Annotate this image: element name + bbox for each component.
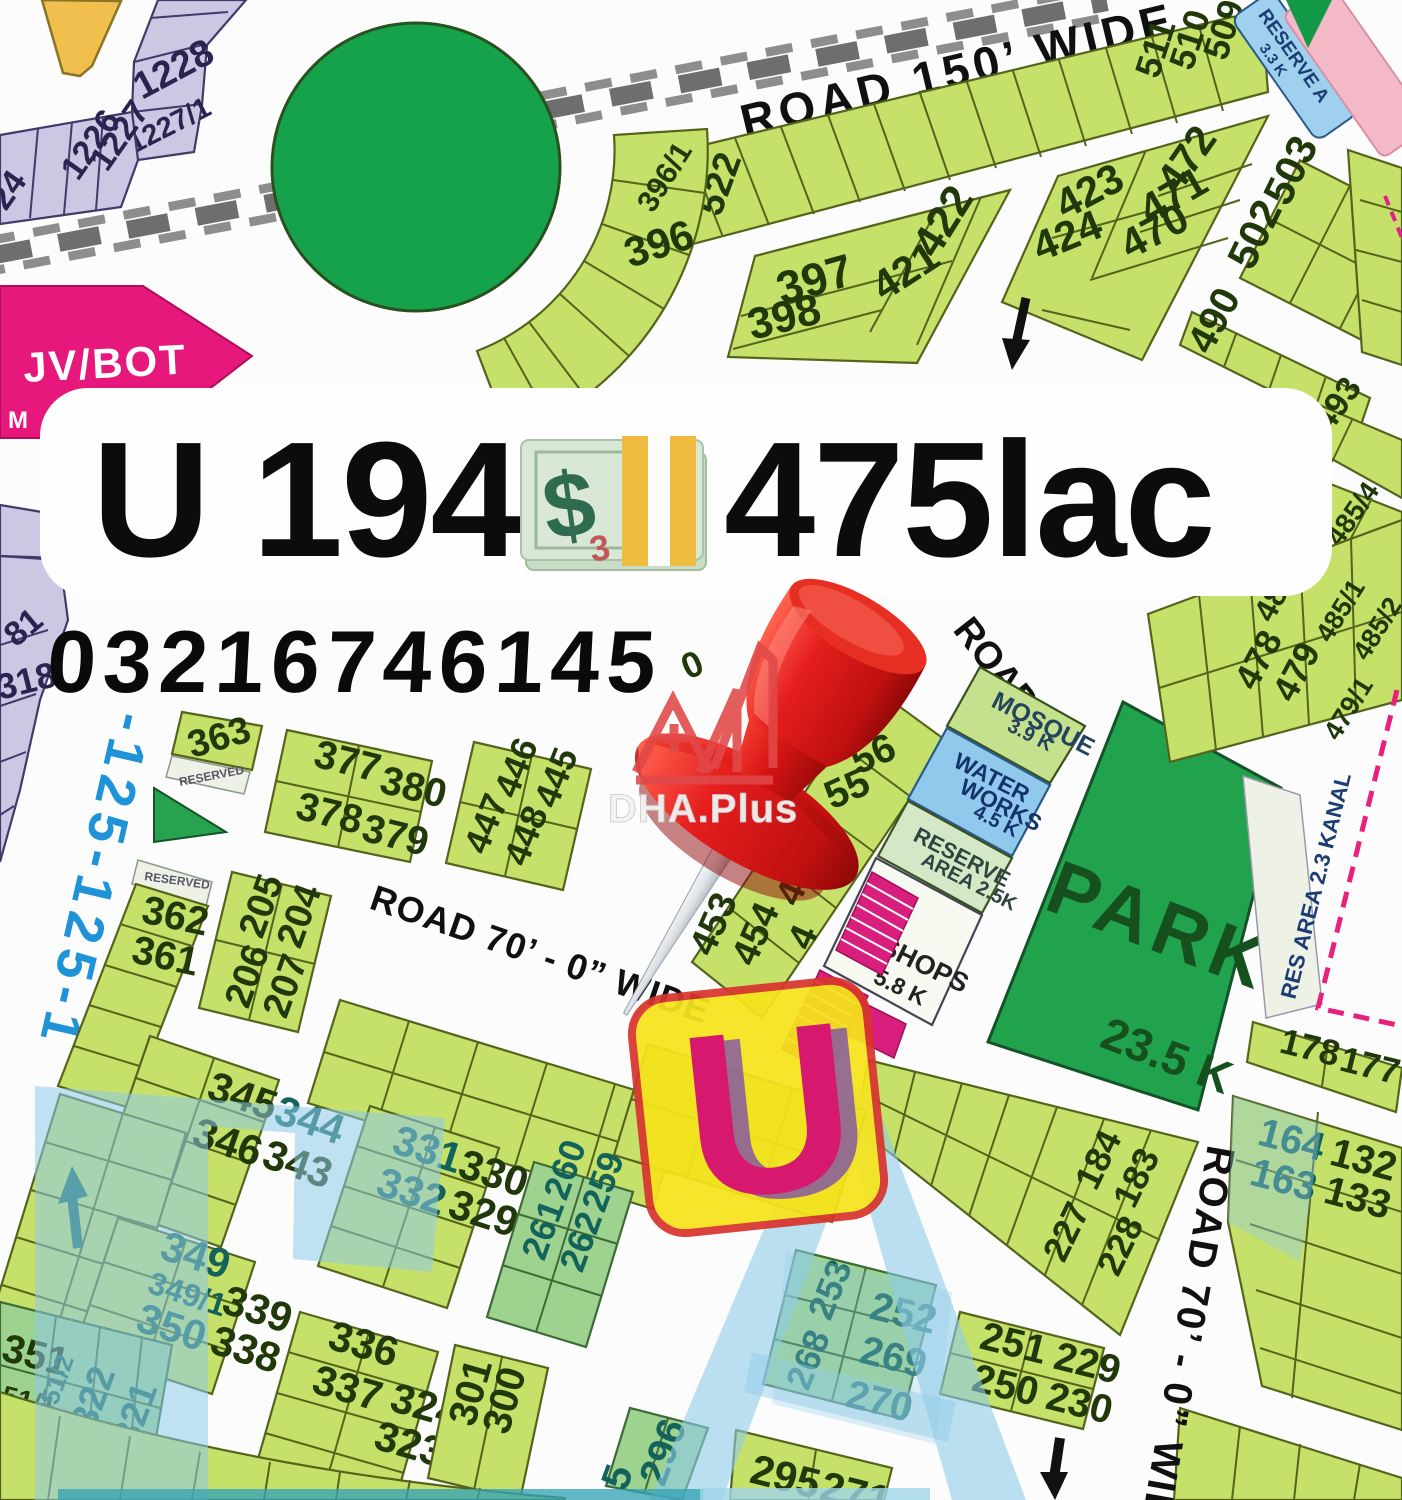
- svg-text:U: U: [670, 971, 866, 1250]
- svg-text:U 194: U 194: [92, 408, 521, 591]
- svg-text:03216746145: 03216746145: [45, 612, 665, 711]
- svg-text:DHA.Plus: DHA.Plus: [608, 787, 798, 831]
- svg-text:M: M: [8, 407, 28, 434]
- svg-text:JV/BOT: JV/BOT: [22, 335, 188, 391]
- svg-text:475lac: 475lac: [724, 408, 1214, 591]
